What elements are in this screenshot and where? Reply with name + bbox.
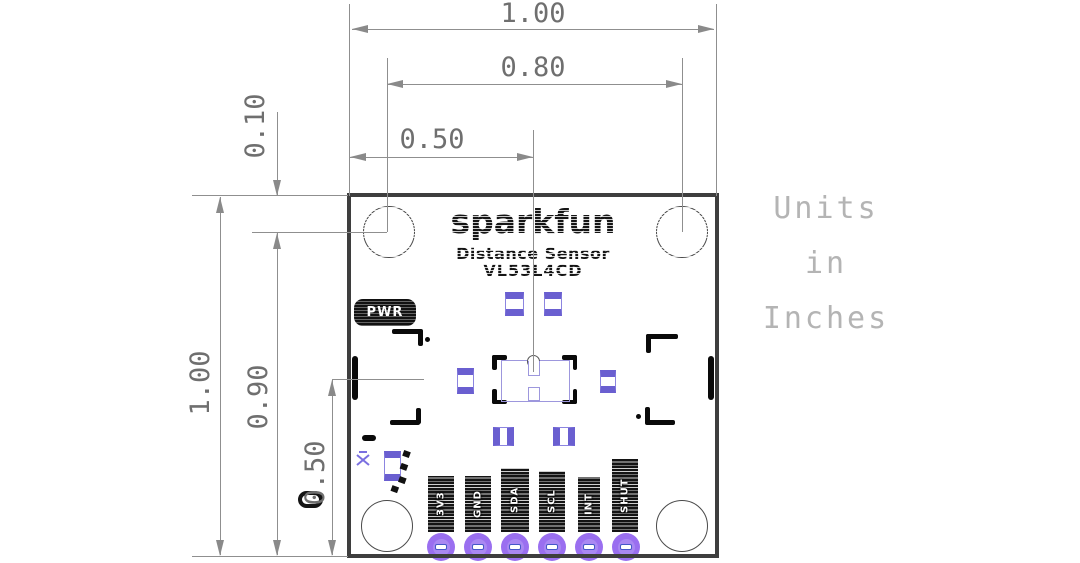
ext-line-hole-right [682, 58, 683, 232]
sensor-bracket [573, 389, 578, 404]
arrow-icon [352, 25, 368, 33]
arrow-icon [387, 80, 403, 88]
dim-line-height-1-00 [220, 197, 221, 555]
silkscreen-dot [425, 337, 430, 342]
pad-slot [546, 544, 558, 550]
dim-label-width-0-80: 0.80 [493, 54, 573, 82]
pad-slot [509, 544, 521, 550]
arrow-icon [273, 233, 281, 249]
corner-bracket [646, 334, 651, 353]
pwr-led-label: PWR [354, 299, 416, 326]
dim-label-height-0-10: 0.10 [242, 86, 270, 166]
small-silkscreen-text [402, 450, 411, 458]
arrow-icon [328, 540, 336, 556]
dim-label-height-0-90: 0.90 [245, 357, 273, 437]
smd-pad [493, 427, 514, 446]
dim-label-width-1-00: 1.00 [493, 0, 573, 28]
ext-line-board-bottom [192, 556, 348, 557]
qwiic-connector-left [352, 356, 358, 400]
smd-pad [384, 451, 401, 481]
silkscreen-dot [636, 414, 641, 419]
ext-line-board-right [716, 4, 717, 196]
pin-label-SCL: SCL [539, 471, 565, 532]
pin-label-GND: GND [465, 476, 491, 532]
through-hole-pad-3V3 [427, 533, 455, 561]
smd-pad [505, 292, 524, 316]
corner-bracket [418, 329, 423, 346]
units-note-line3: Inches [740, 301, 912, 336]
pad-slot [583, 544, 595, 550]
smd-pad [457, 368, 474, 394]
corner-bracket [645, 420, 675, 425]
ext-line-sensor-center [332, 379, 424, 380]
through-hole-pad-SCL [538, 533, 566, 561]
arrow-icon [273, 540, 281, 556]
ext-line-board-left [349, 4, 350, 196]
pad-slot [435, 544, 447, 550]
sensor-bracket [573, 355, 578, 370]
sensor-bracket [492, 355, 497, 370]
mounting-hole-bottom-left [361, 500, 413, 552]
pin-label-INT: INT [578, 477, 600, 532]
pad-slot [472, 544, 484, 550]
units-note-line1: Units [740, 191, 912, 226]
qwiic-connector-right [708, 356, 714, 400]
arrow-icon [273, 180, 281, 196]
arrow-icon [698, 25, 714, 33]
pin-label-SDA: SDA [501, 468, 529, 532]
pin-label-3V3: 3V3 [428, 476, 454, 532]
smd-pad [600, 370, 616, 393]
mounting-hole-bottom-right [656, 500, 708, 552]
arrow-icon [350, 153, 366, 161]
dimensional-drawing: 1.00 0.80 0.50 0.10 1.00 0.90 0.50 Units… [0, 0, 1080, 563]
ext-line-board-top [192, 195, 348, 196]
arrow-icon [666, 80, 682, 88]
corner-bracket [646, 334, 678, 339]
dim-label-width-0-50: 0.50 [397, 126, 467, 154]
dim-line-width-0-50 [350, 157, 533, 158]
arrow-icon [328, 380, 336, 396]
silkscreen-dash [362, 435, 376, 441]
dim-line-width-1-00 [352, 29, 714, 30]
x-marker-icon [356, 450, 370, 466]
corner-bracket [645, 407, 650, 424]
dim-line-height-0-50 [332, 380, 333, 555]
units-note-line2: in [740, 246, 912, 281]
center-line [533, 130, 534, 372]
through-hole-pad-GND [464, 533, 492, 561]
dim-line-width-0-80 [387, 84, 682, 85]
sensor-bracket [492, 389, 497, 404]
through-hole-pad-SHUT [612, 533, 640, 561]
smd-pad [553, 427, 575, 446]
smd-pad [544, 292, 562, 316]
pin-label-SHUT: SHUT [612, 459, 638, 532]
arrow-icon [517, 153, 533, 161]
through-hole-pad-INT [575, 533, 603, 561]
sensor-top-notch [528, 361, 540, 376]
arrow-icon [216, 197, 224, 213]
sensor-bottom-notch [528, 387, 540, 401]
dim-label-height-0-50: 0.50 [302, 433, 330, 513]
through-hole-pad-SDA [501, 533, 529, 561]
arrow-icon [216, 540, 224, 556]
dim-label-height-1-00: 1.00 [187, 343, 215, 423]
corner-bracket [416, 408, 421, 424]
pad-slot [620, 544, 632, 550]
dim-line-height-0-90 [277, 233, 278, 555]
